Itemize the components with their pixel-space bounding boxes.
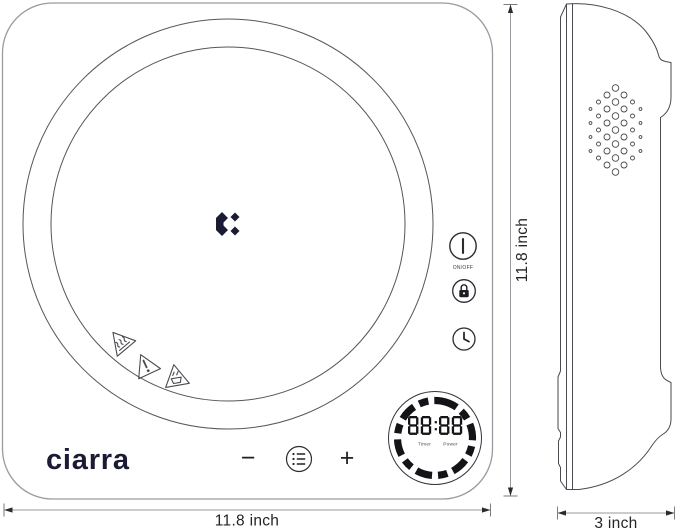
brand-wordmark: ciarra: [46, 444, 130, 476]
dimension-front-height: 11.8 inch: [504, 5, 532, 497]
front-view: ON/OFF Timer Power ciarra −: [3, 3, 493, 499]
side-depth-label: 3 inch: [594, 515, 637, 531]
product-dimension-diagram: ON/OFF Timer Power ciarra −: [0, 0, 679, 531]
power-button-label: ON/OFF: [453, 265, 473, 271]
height-arrow-bottom: [508, 488, 513, 497]
width-arrow-left: [4, 507, 13, 512]
front-width-label: 11.8 inch: [215, 513, 279, 530]
width-arrow-right: [482, 507, 491, 512]
front-height-label: 11.8 inch: [514, 218, 531, 282]
minus-button: −: [241, 444, 256, 472]
dimension-side-depth: 3 inch: [558, 507, 675, 531]
dimension-front-width: 11.8 inch: [4, 504, 491, 530]
side-view: [558, 4, 671, 490]
diagram-svg: ON/OFF Timer Power ciarra −: [0, 0, 679, 531]
display-power-label: Power: [443, 442, 458, 448]
side-left-flange: [558, 4, 567, 490]
depth-arrow-left: [558, 510, 567, 515]
cooktop-body-outline: [3, 3, 493, 499]
plus-button: +: [340, 444, 355, 472]
side-profile-outline: [567, 4, 672, 490]
depth-arrow-right: [666, 510, 675, 515]
menu-list-icon: [292, 453, 305, 465]
display-timer-label: Timer: [418, 442, 431, 448]
height-arrow-top: [508, 5, 513, 14]
